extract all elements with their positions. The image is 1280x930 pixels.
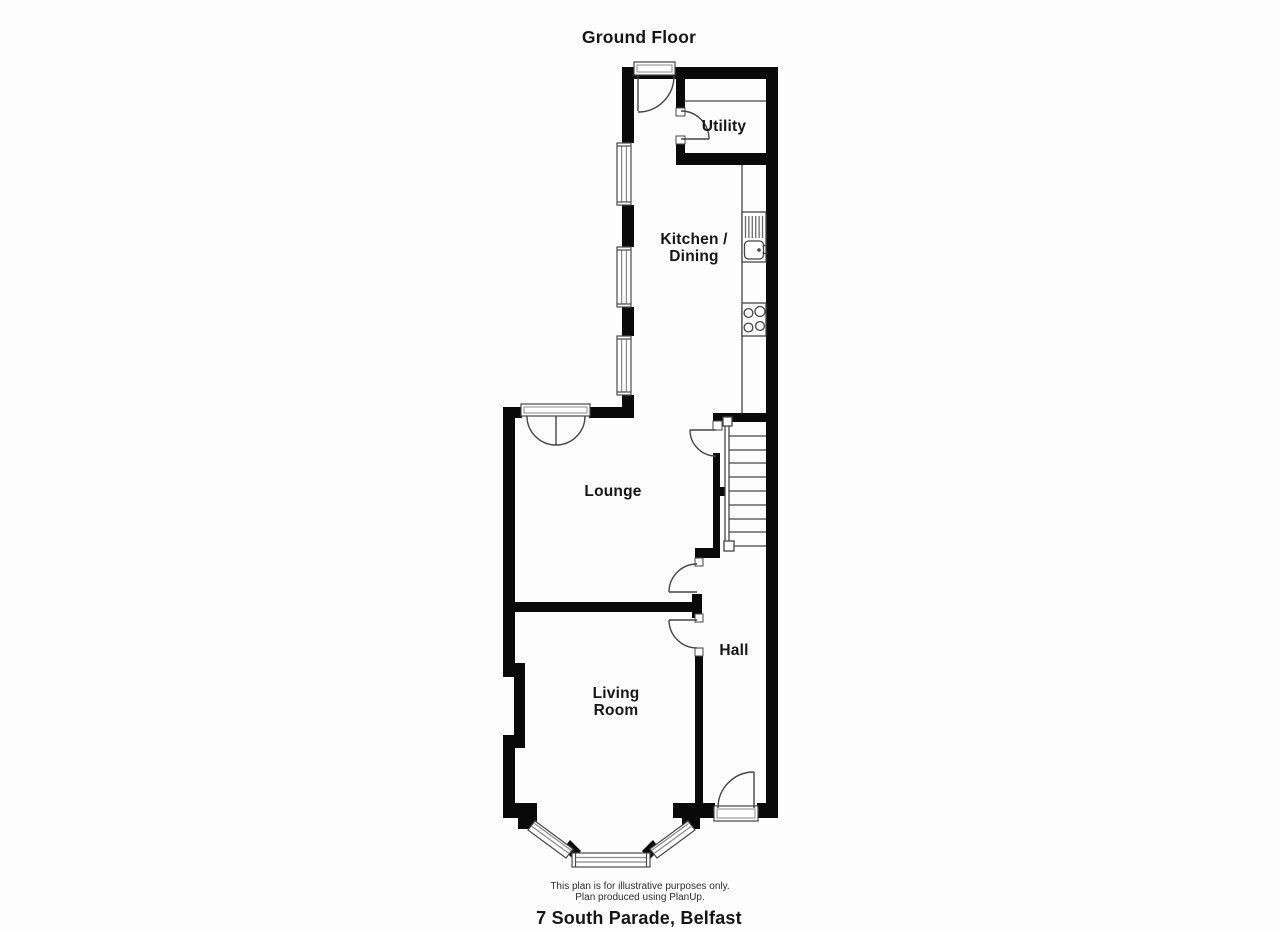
bay-window — [528, 821, 695, 867]
floor-title: Ground Floor — [582, 27, 696, 48]
hall-living-door-icon — [669, 614, 703, 656]
hob-icon — [742, 303, 766, 336]
bay-window-right-icon — [650, 821, 695, 858]
room-label-kitchen-dining: Kitchen / Dining — [660, 232, 727, 265]
disclaimer-line2: Plan produced using PlanUp. — [575, 892, 705, 903]
newel-post — [724, 541, 734, 551]
stair-rail — [725, 421, 729, 546]
stairs — [723, 417, 766, 551]
window-icon — [617, 143, 631, 205]
window-icon — [617, 336, 631, 395]
room-label-living-line1: Living — [593, 686, 640, 703]
room-label-lounge: Lounge — [584, 484, 641, 501]
bay-window-center-icon — [572, 853, 650, 867]
room-label-living-line2: Room — [593, 703, 640, 720]
front-door-icon — [714, 772, 758, 821]
window-icon — [617, 247, 631, 307]
room-label-hall: Hall — [719, 643, 748, 660]
back-door-icon — [634, 62, 675, 112]
hall-lounge-door-icon — [669, 558, 703, 592]
kitchen-windows — [617, 143, 631, 395]
bay-window-left-icon — [528, 821, 573, 858]
room-label-utility: Utility — [702, 119, 746, 136]
room-label-kitchen-line2: Dining — [660, 249, 727, 266]
doors — [521, 62, 758, 821]
newel-post — [723, 417, 732, 426]
lounge-stairs-door-icon — [690, 421, 722, 456]
floor-plan-drawing — [0, 0, 1280, 930]
french-doors-icon — [521, 404, 590, 445]
room-label-living-room: Living Room — [593, 686, 640, 719]
sink-icon — [742, 212, 766, 262]
room-label-kitchen-line1: Kitchen / — [660, 232, 727, 249]
property-address: 7 South Parade, Belfast — [536, 908, 742, 929]
floor-plan-page: Ground Floor Utility Kitchen / Dining Lo… — [0, 0, 1280, 930]
disclaimer-line1: This plan is for illustrative purposes o… — [550, 881, 729, 892]
